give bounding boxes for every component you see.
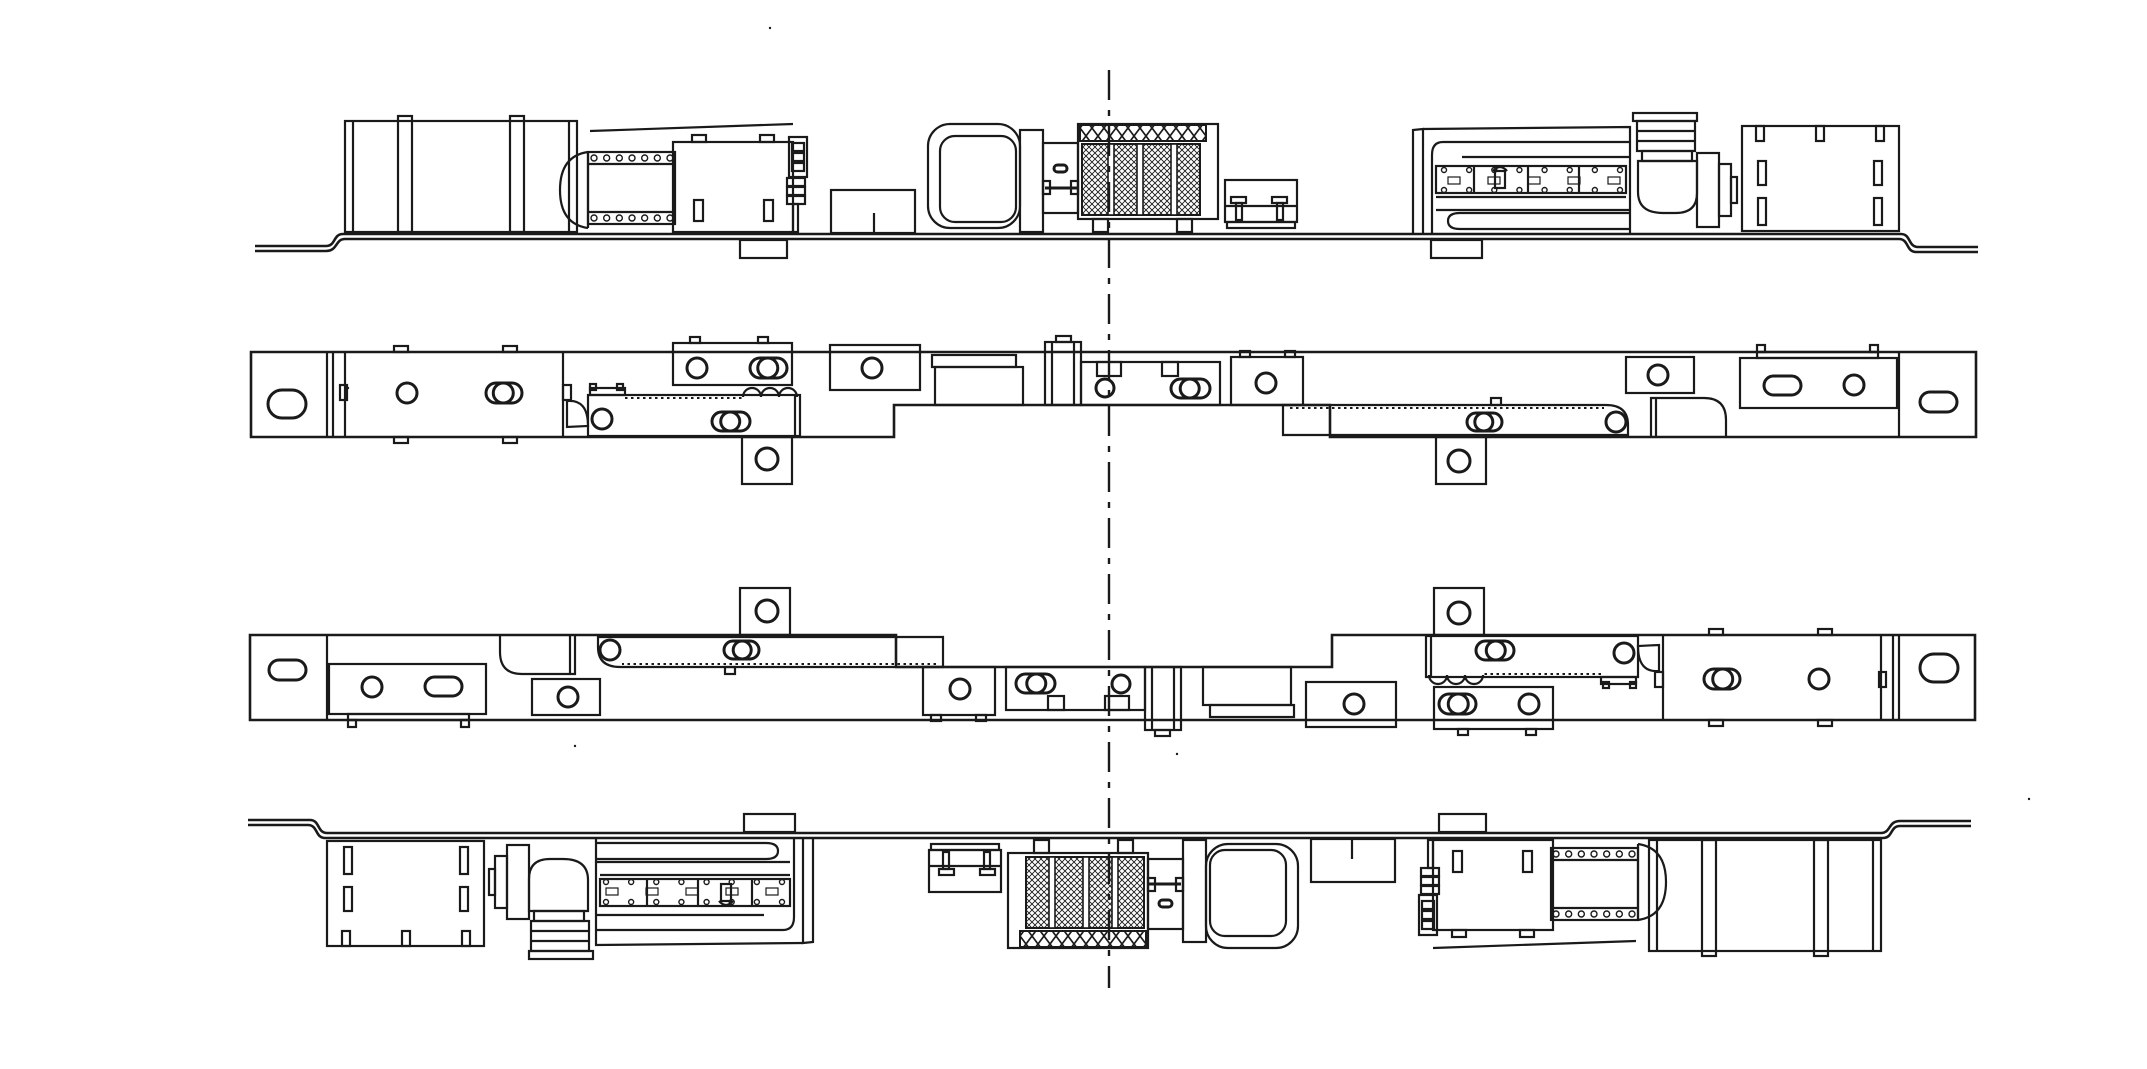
scan-speck xyxy=(347,387,349,389)
scan-speck xyxy=(574,745,576,747)
technical-drawing-page xyxy=(0,0,2147,1069)
radiator-grille-box xyxy=(1078,124,1218,232)
radiator-grille-box xyxy=(1008,840,1148,948)
scan-speck xyxy=(769,27,771,29)
scan-speck xyxy=(1176,753,1178,755)
engineering-drawing-canvas xyxy=(0,0,2147,1069)
scan-speck xyxy=(2028,798,2030,800)
